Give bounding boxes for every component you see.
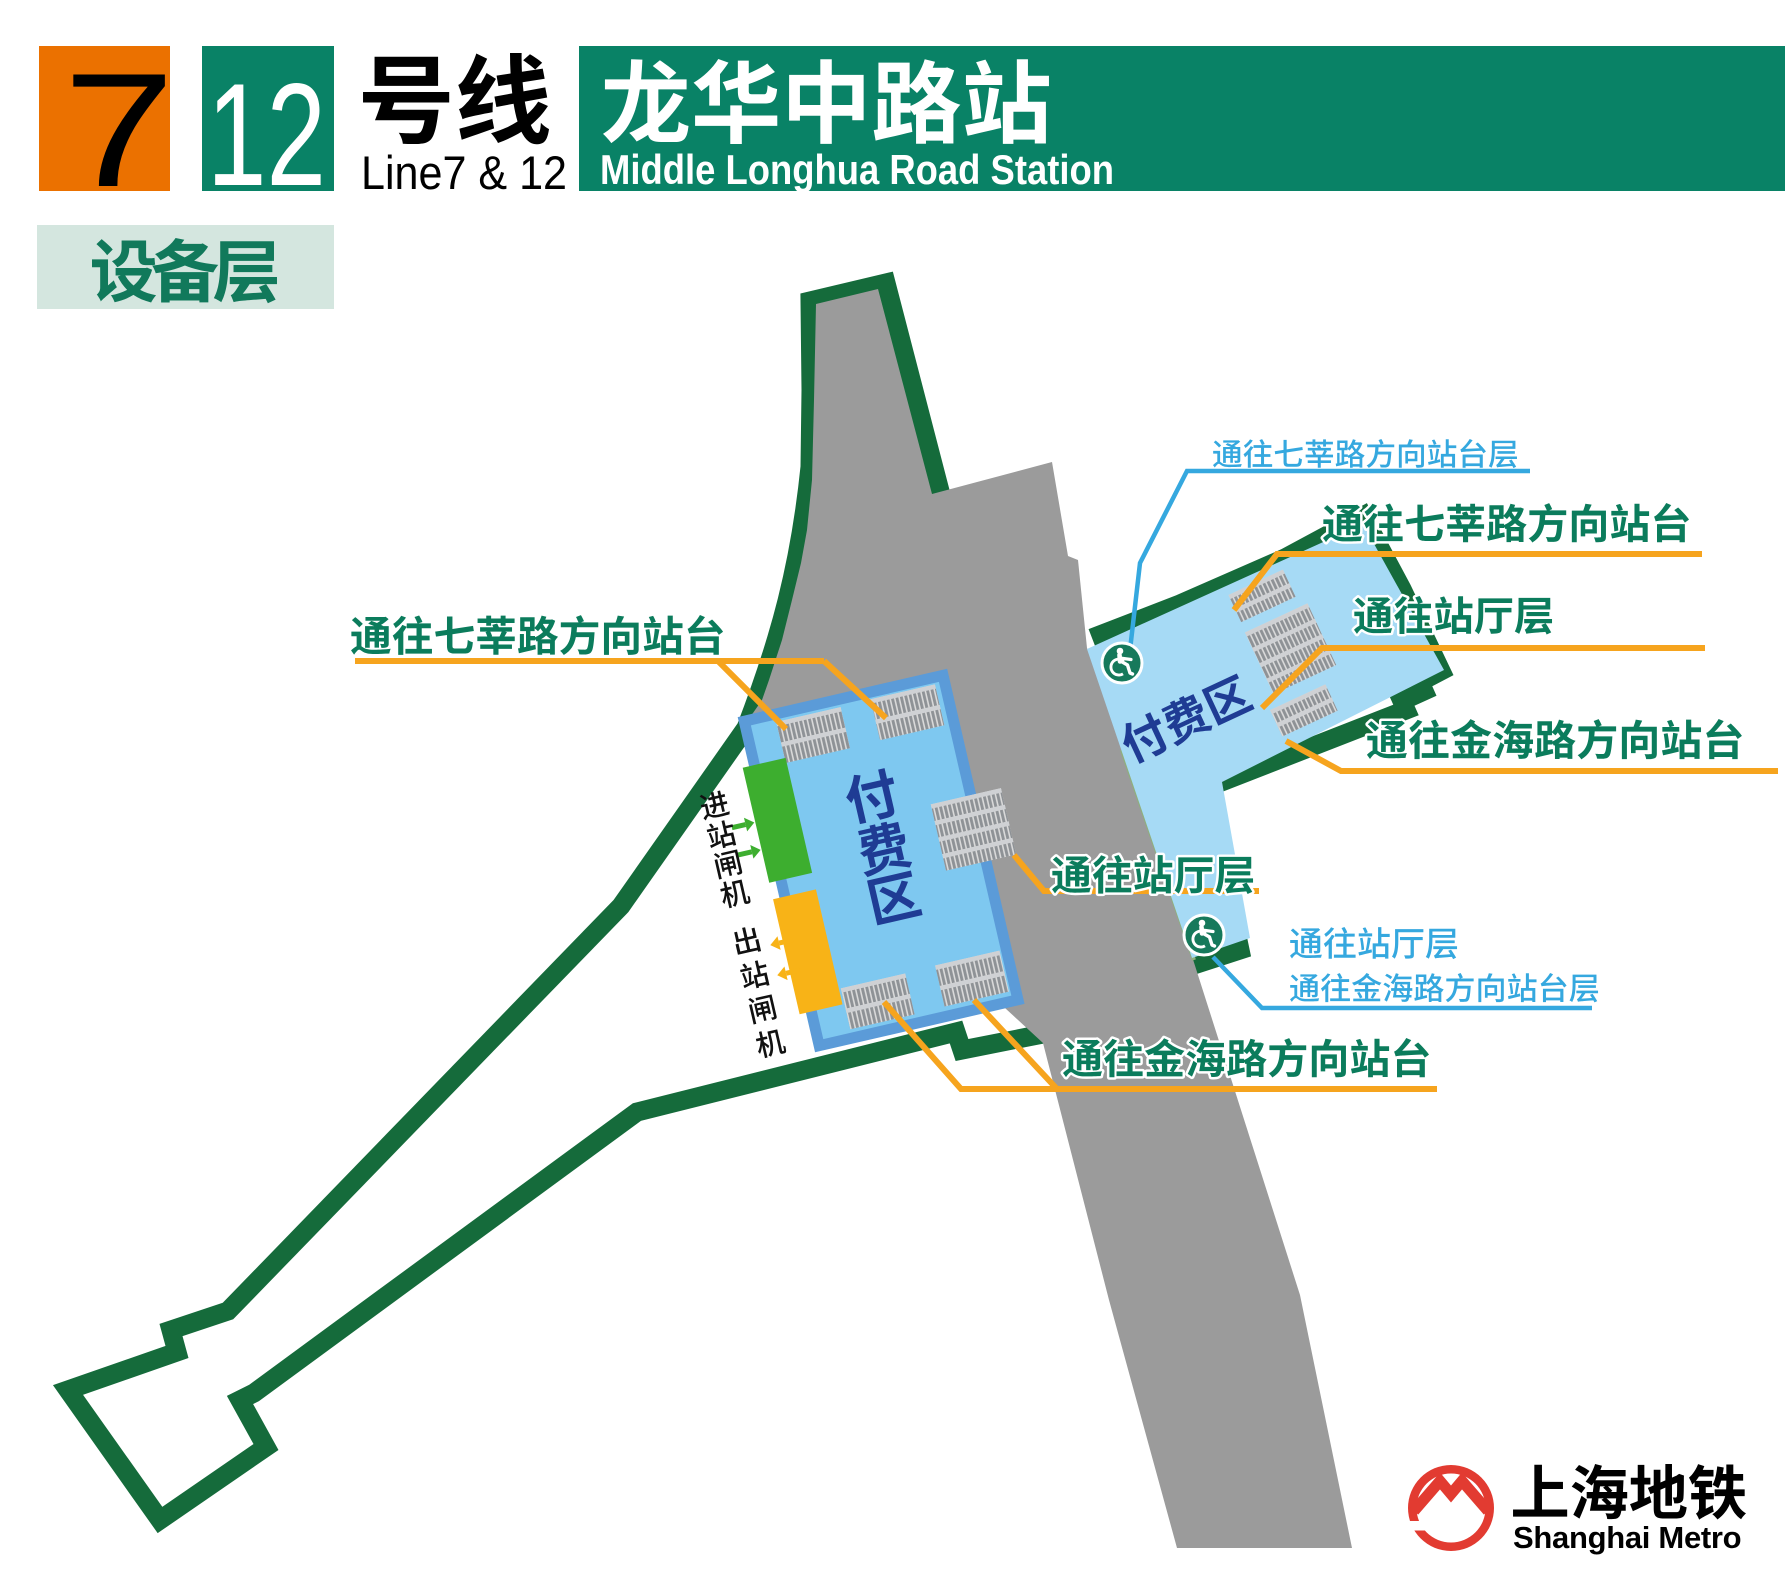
svg-text:7: 7	[63, 40, 175, 221]
svg-text:Middle Longhua Road Station: Middle Longhua Road Station	[600, 146, 1114, 193]
svg-text:Line7 & 12: Line7 & 12	[361, 146, 567, 199]
svg-text:12: 12	[207, 53, 326, 216]
svg-text:Shanghai Metro: Shanghai Metro	[1513, 1520, 1741, 1555]
